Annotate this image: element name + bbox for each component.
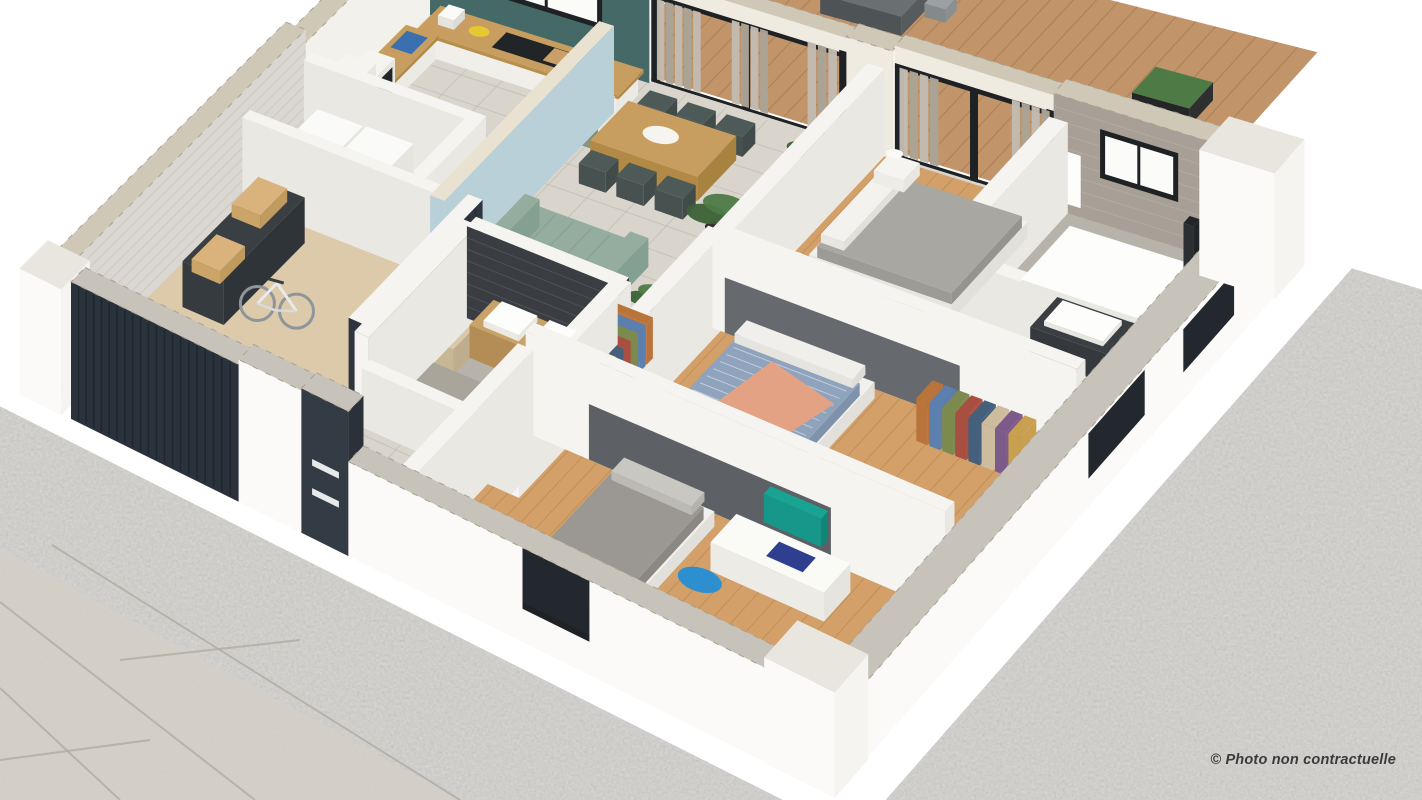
curtain-living-left (657, 0, 701, 93)
corner-pillar-s (764, 620, 868, 798)
copyright-notice: © Photo non contractuelle (1210, 752, 1396, 768)
floor-plan-stage: © Photo non contractuelle (0, 0, 1422, 800)
floor-plan-3d-render (0, 0, 1422, 800)
bay-window-post (970, 87, 978, 183)
corner-pillar-e (1199, 116, 1304, 299)
